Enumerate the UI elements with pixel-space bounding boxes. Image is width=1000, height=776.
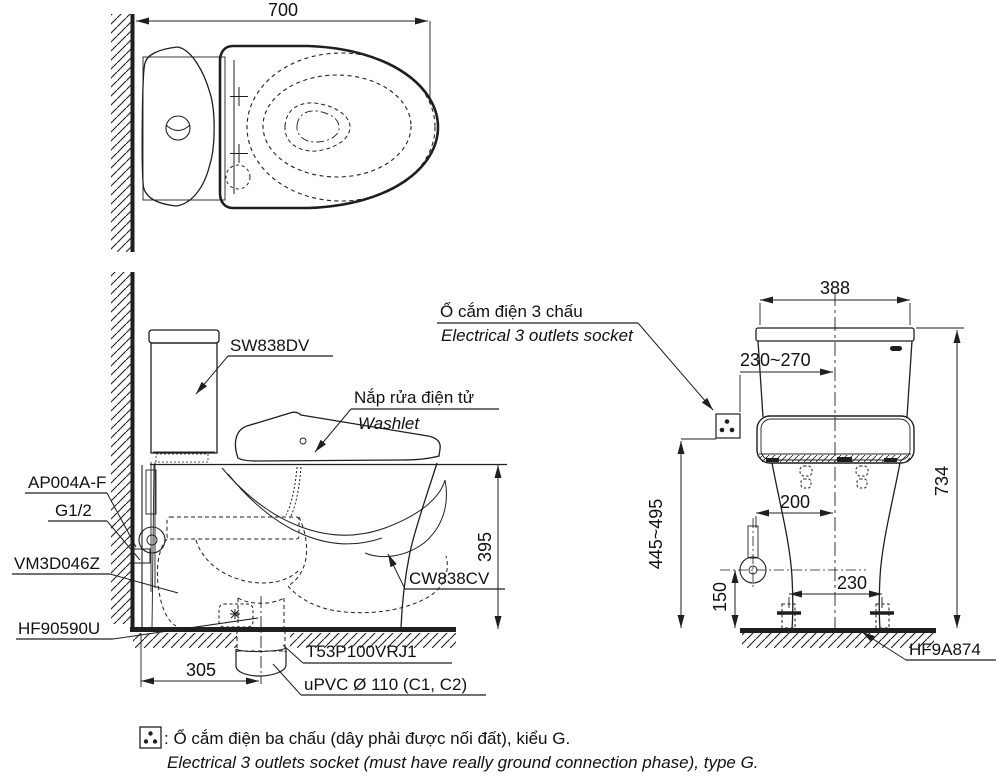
bowl-front-view [772,463,900,629]
toto-logo [890,346,902,351]
label-valve-model: VM3D046Z [14,554,100,573]
wall-hatch-top [111,14,133,252]
socket-icon [716,414,740,438]
label-washlet-en: Washlet [358,414,420,433]
supply-line-side [134,462,165,592]
dim-200-text: 200 [780,492,810,512]
washlet-front-view [757,416,914,463]
label-bolt-model: HF9A874 [909,640,981,659]
label-seal-model: HF90590U [18,619,100,638]
seat-top-view [220,46,438,208]
dim-734: 734 [916,328,964,628]
dim-445-495-text: 445~495 [646,499,666,570]
dim-200: 200 [756,492,833,528]
dim-445-495: 445~495 [646,439,716,628]
label-bowl-model: CW838CV [409,569,490,588]
dim-395-text: 395 [475,532,495,562]
dim-305-text: 305 [186,660,216,680]
front-view: 388 [437,278,996,660]
label-flange-model: T53P100VRJ1 [306,642,417,661]
dim-700: 700 [136,0,430,104]
footnote: : Ổ cắm điện ba chấu (dây phải được nối … [140,727,759,772]
label-socket-vi: Ổ cắm điện 3 chấu [440,302,583,321]
seal-center-mark [230,609,240,619]
dim-230-270-text: 230~270 [740,350,811,370]
flush-button [166,116,190,140]
label-washlet-vi: Nắp rửa điện tử [354,388,474,407]
footnote-vi: : Ổ cắm điện ba chấu (dây phải được nối … [164,729,570,748]
top-view: 700 [111,0,438,252]
socket-label: Ổ cắm điện 3 chấu Electrical 3 outlets s… [437,302,713,410]
dim-230-270: 230~270 [740,350,833,412]
floor-front [740,631,936,649]
socket-note-icon [140,727,161,748]
dim-388-text: 388 [820,278,850,298]
label-thread-size: G1/2 [55,501,92,520]
dim-734-text: 734 [932,466,952,496]
dim-230: 230 [789,573,882,608]
tank-side-view [149,330,219,462]
label-tank-model: SW838DV [230,336,310,355]
dim-395: 395 [475,465,498,629]
toilet-technical-drawing: 700 [0,0,1000,776]
hinge-cross-marks [230,87,248,163]
floor-bolts [777,604,894,628]
label-socket-en: Electrical 3 outlets socket [441,326,634,345]
dim-150-text: 150 [710,582,730,612]
label-supply-valve: AP004A-F [28,473,106,492]
drawing-svg: 700 [0,0,1000,776]
tank-top-view [142,47,225,206]
bowl-side-view [142,463,507,628]
dim-150: 150 [710,570,735,628]
dim-230-text: 230 [837,573,867,593]
dim-700-text: 700 [268,0,298,20]
footnote-en: Electrical 3 outlets socket (must have r… [167,753,759,772]
label-pipe-spec: uPVC Ø 110 (C1, C2) [304,675,467,694]
side-view: 305 395 SW838DV Nắp rửa điện tử Washlet … [12,272,507,695]
